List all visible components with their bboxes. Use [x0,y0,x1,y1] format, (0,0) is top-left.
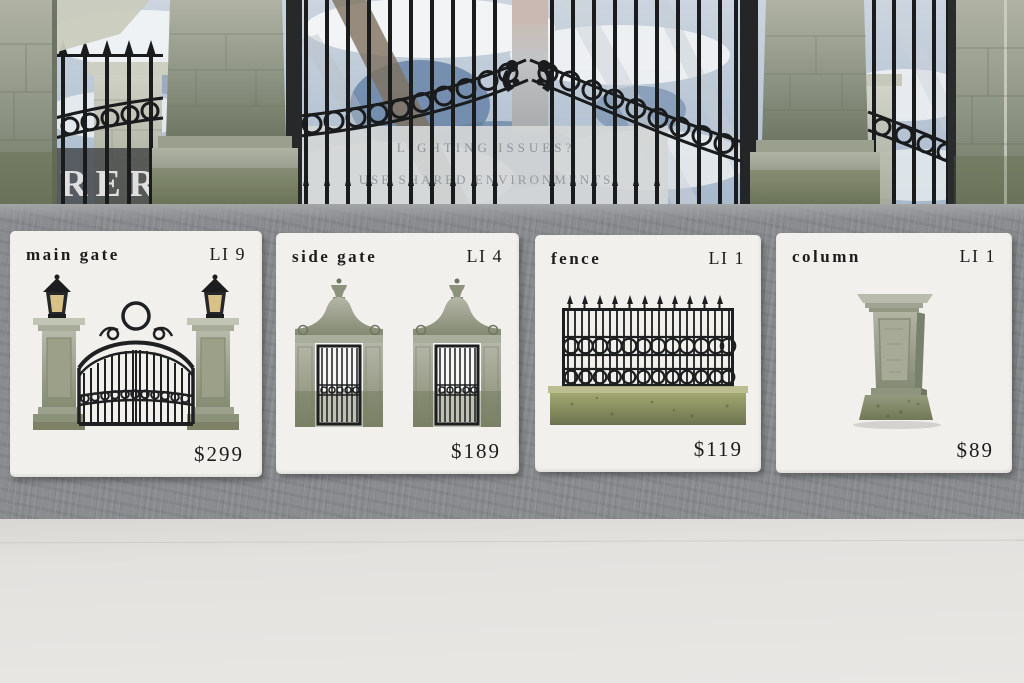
card-header: main gate LI 9 [10,231,262,265]
product-price: $89 [776,438,1012,473]
product-name: fence [551,249,601,269]
land-impact-badge: LI 9 [210,244,247,265]
sign-line-1: LIGHTING ISSUES? [397,140,575,155]
floor [0,519,1024,683]
vendor-card-fence[interactable]: fence LI 1 [535,235,761,472]
vendor-card-main-gate[interactable]: main gate LI 9 [10,231,262,477]
card-header: side gate LI 4 [276,233,519,267]
vendor-card-side-gate[interactable]: side gate LI 4 [276,233,519,474]
land-impact-badge: LI 4 [467,246,504,267]
product-price: $119 [535,437,761,472]
main-gate-image [10,265,262,442]
card-header: column LI 1 [776,233,1012,267]
product-price: $299 [10,442,262,477]
product-price: $189 [276,439,519,474]
land-impact-badge: LI 1 [709,248,746,269]
column-image [776,267,1012,438]
gate-backdrop: LIGHTING ISSUES? USE SHARED ENVIRONMENTS… [0,0,1024,204]
side-gate-image [276,267,519,439]
vendor-card-column[interactable]: column LI 1 [776,233,1012,473]
product-name: column [792,247,861,267]
card-header: fence LI 1 [535,235,761,269]
product-name: main gate [26,245,120,265]
land-impact-badge: LI 1 [960,246,997,267]
fence-image [535,269,761,437]
storefront-scene: LIGHTING ISSUES? USE SHARED ENVIRONMENTS… [0,0,1024,683]
product-name: side gate [292,247,377,267]
partial-wall-text: RER [60,163,164,204]
